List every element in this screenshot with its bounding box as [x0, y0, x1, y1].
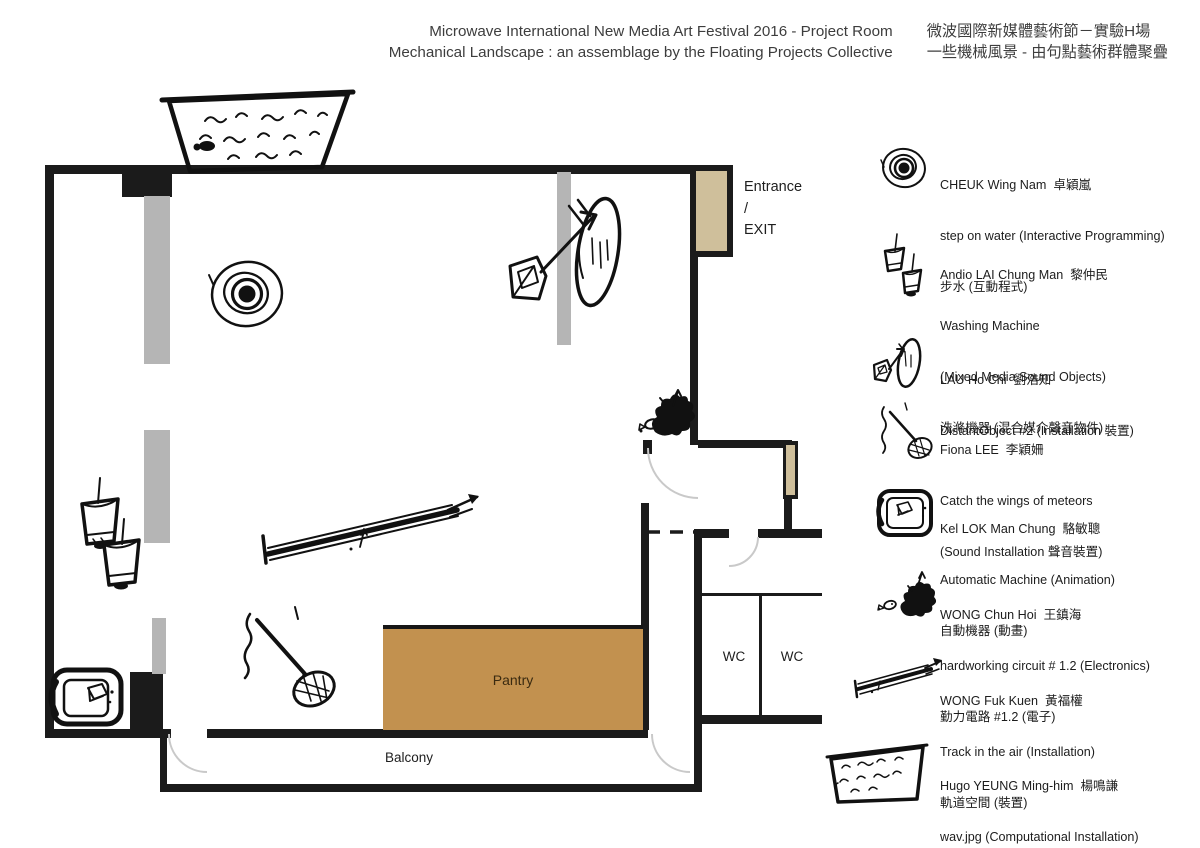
catch-meteors-sketch: [245, 607, 340, 712]
title-zh-line1: 微波國際新媒體藝術節－實驗H場: [927, 21, 1168, 42]
pantry-label: Pantry: [493, 672, 533, 688]
water-basin-sketch: [162, 92, 353, 171]
wall-right-upper: [690, 255, 698, 445]
hanging-buckets-icon: [885, 234, 921, 297]
washing-machine-sketch: [82, 478, 139, 590]
balcony-left-door-arc: [169, 734, 207, 772]
balcony-label: Balcony: [385, 750, 433, 765]
wc-divider: [759, 595, 762, 717]
page-title: Microwave International New Media Art Fe…: [388, 21, 1168, 63]
concentric-circles-icon: [880, 145, 929, 191]
legend-entry-hugo-yeung: Hugo YEUNG Ming-him 楊鳴謙 wav.jpg (Computa…: [940, 744, 1190, 848]
wall-a: [698, 440, 788, 448]
wc-right-label: WC: [764, 649, 820, 664]
side-door: [786, 445, 795, 495]
wall-bottom-main-segment: [207, 729, 648, 738]
track-beam-icon: [855, 658, 942, 697]
wc-top-line: [702, 593, 822, 596]
circuit-scribble-icon: [878, 572, 936, 617]
wc-left-label: WC: [710, 649, 758, 664]
gray-column-entrance: [557, 172, 571, 345]
hardworking-circuit-sketch: [639, 390, 695, 436]
title-en-line2: Mechanical Landscape : an assemblage by …: [388, 42, 893, 63]
wall-left: [45, 165, 54, 738]
net-icon: [882, 403, 935, 462]
entrance-label: Entrance / EXIT: [744, 177, 802, 242]
gray-column-3: [152, 618, 166, 674]
gray-column-2: [144, 430, 170, 543]
balcony-right-door-arc: [652, 734, 690, 772]
balcony-bottom-wall: [160, 784, 702, 792]
track-in-air-sketch: [263, 494, 479, 563]
automatic-machine-sketch: [52, 670, 122, 724]
machine-box-icon: [879, 491, 932, 535]
corridor-door-arc: [648, 448, 698, 498]
title-en-line1: Microwave International New Media Art Fe…: [388, 21, 893, 42]
step-on-water-sketch: [207, 256, 287, 331]
pantry-area: Pantry: [383, 625, 643, 730]
wall-b-right: [758, 529, 822, 538]
entrance-door: [696, 171, 727, 251]
pillar-bottom-left: [130, 672, 163, 732]
mirror-arrow-icon: [874, 338, 924, 389]
gray-column-1: [144, 196, 170, 364]
title-zh-line2: 一些機械風景 - 由句點藝術群體聚疊: [927, 42, 1168, 63]
floor-plan-page: Microwave International New Media Art Fe…: [0, 0, 1200, 848]
title-english: Microwave International New Media Art Fe…: [388, 21, 893, 63]
wc-bottom-wall: [702, 715, 822, 724]
title-chinese: 微波國際新媒體藝術節－實驗H場 一些機械風景 - 由句點藝術群體聚疊: [927, 21, 1168, 63]
corridor-left-wall: [694, 529, 702, 792]
pillar-top-left: [122, 168, 172, 197]
wall-a-end-cap: [643, 440, 652, 454]
wc-hall-door-arc: [729, 537, 758, 566]
water-basin-icon: [827, 745, 927, 802]
